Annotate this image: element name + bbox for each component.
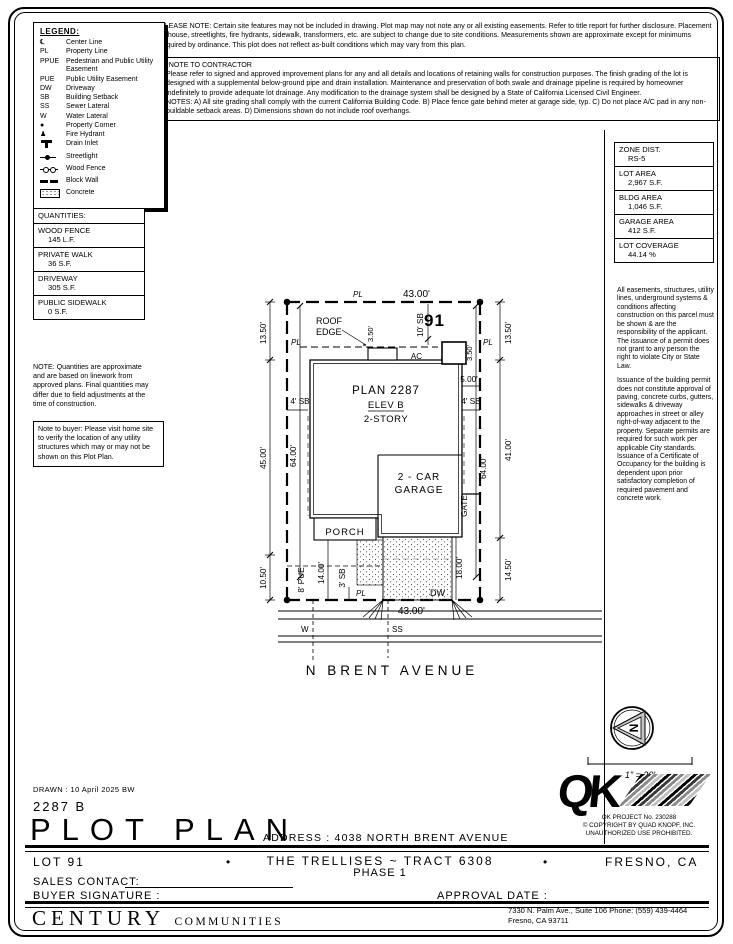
legend-item-setback: SBBuilding Setback: [40, 94, 160, 103]
water-symbol: W: [40, 113, 66, 122]
qk-logo-block: QK QK PROJECT No. 230288 © COPYRIGHT BY …: [556, 774, 708, 846]
house-bay: [368, 348, 397, 360]
dim-rear-setback: 3' SB: [338, 568, 347, 588]
ac-pad: [442, 342, 466, 364]
city-label: FRESNO, CA: [605, 855, 698, 869]
legend-item-driveway: DWDriveway: [40, 85, 160, 94]
disclaimer-easements: All easements, structures, utility lines…: [617, 287, 714, 371]
sewer-symbol: SS: [40, 103, 66, 112]
block-wall-icon: [40, 177, 58, 185]
dim-top-width: 43.00': [403, 289, 430, 300]
roof-edge-leader: [342, 330, 366, 345]
legend-item-wood-fence: Wood Fence: [40, 165, 160, 177]
qk-notice: UNAUTHORIZED USE PROHIBITED.: [570, 830, 708, 838]
site-plan-drawing: PL 43.00' PL PL PL 43.00' 13.50' 45.00' …: [170, 278, 620, 703]
please-note-text: PLEASE NOTE: Certain site features may n…: [160, 22, 712, 50]
roof-edge-label-2: EDGE: [316, 327, 342, 337]
bullet-separator-1: •: [226, 855, 230, 869]
dim-ac-width: 5.00': [460, 375, 478, 384]
quantities-title: QUANTITIES:: [33, 208, 145, 224]
fire-hydrant-icon: ♟: [40, 131, 66, 140]
roof-edge-label-1: ROOF: [316, 316, 343, 326]
sheet-title: PLOT PLAN: [30, 812, 299, 848]
streetlight-icon: [40, 153, 56, 161]
address-value: 4038 NORTH BRENT AVENUE: [335, 832, 509, 844]
sewer-lateral-label: SS: [392, 625, 403, 634]
company-logo: CENTURY COMMUNITIES: [32, 906, 283, 931]
legend-box: LEGEND: ℄Center Line PLProperty Line PPU…: [33, 22, 165, 209]
street-name: N BRENT AVENUE: [306, 663, 479, 678]
legend-title: LEGEND:: [40, 27, 160, 37]
drawn-by: DRAWN : 10 April 2025 BW: [33, 785, 135, 794]
dim-driveway-depth: 18.00': [455, 557, 464, 579]
plot-plan-sheet: PLEASE NOTE: Certain site features may n…: [0, 0, 733, 944]
company-address-line1: 7330 N. Palm Ave., Suite 106 Phone: (559…: [508, 906, 687, 916]
lot-number: 91: [424, 311, 445, 330]
dw-label: DW: [430, 588, 445, 598]
zoning-table: ZONE DIST.RS-5 LOT AREA2,967 S.F. BLDG A…: [614, 142, 714, 263]
dim-pue: 8' PUE: [297, 567, 306, 593]
legend-item-fire-hydrant: ♟Fire Hydrant: [40, 131, 160, 140]
dim-left-mid: 45.00': [259, 447, 268, 469]
legend-item-pue: PUEPublic Utility Easement: [40, 76, 160, 85]
legend-item-drain-inlet: Drain Inlet: [40, 140, 160, 152]
qk-logo-text: QK: [555, 764, 620, 818]
address-label: ADDRESS :: [263, 832, 330, 844]
quantities-row-wood-fence: WOOD FENCE145 L.F.: [33, 224, 145, 248]
private-walk-concrete: [357, 540, 383, 585]
zone-district-row: ZONE DIST.RS-5: [614, 142, 714, 167]
property-corner-icon: ●: [40, 122, 66, 131]
lot-label: LOT 91: [33, 855, 85, 869]
company-address: 7330 N. Palm Ave., Suite 106 Phone: (559…: [508, 906, 687, 926]
garage-label-1: 2 - CAR: [398, 472, 441, 483]
plan-name: PLAN 2287: [352, 385, 420, 397]
pl-label-right: PL: [483, 338, 493, 347]
wood-fence-icon: [40, 165, 58, 173]
pl-label-bottom: PL: [356, 589, 366, 598]
ppue-symbol: PPUE: [40, 58, 66, 67]
legend-item-sewer: SSSewer Lateral: [40, 103, 160, 112]
dim-right-top: 13.50': [504, 322, 513, 344]
legend-item-property-corner: ●Property Corner: [40, 122, 160, 131]
north-label: N: [627, 724, 641, 733]
quantities-table: QUANTITIES: WOOD FENCE145 L.F. PRIVATE W…: [33, 208, 145, 320]
legend-item-water: WWater Lateral: [40, 113, 160, 122]
dim-ac-offset: 3.50': [465, 344, 474, 361]
dim-walk-depth: 14.00': [317, 562, 326, 584]
city-disclaimers: All easements, structures, utility lines…: [617, 287, 714, 510]
contractor-note-list: NOTES: A) All site grading shall comply …: [166, 98, 714, 116]
qk-project-number: QK PROJECT No. 230288: [570, 814, 708, 822]
bullet-separator-2: •: [543, 855, 547, 869]
disclaimer-permits: Issuance of the building permit does not…: [617, 377, 714, 503]
dim-left-bottom: 10.50': [259, 567, 268, 589]
dim-side-setback-right: 4' SB: [461, 397, 481, 406]
quantities-row-public-sidewalk: PUBLIC SIDEWALK0 S.F.: [33, 296, 145, 320]
porch-label: PORCH: [325, 527, 364, 538]
water-lateral-label: W: [301, 625, 309, 634]
sales-contact-field[interactable]: [125, 875, 293, 888]
quantities-row-private-walk: PRIVATE WALK36 S.F.: [33, 248, 145, 272]
dim-right-inner: 64.00': [479, 457, 488, 479]
drain-inlet-icon: [40, 140, 53, 148]
company-name-secondary: COMMUNITIES: [174, 916, 283, 928]
dim-right-mid: 41.00': [504, 439, 513, 461]
gate-label: GATE: [460, 495, 469, 517]
dim-roof-offset: 3.50': [366, 325, 375, 342]
plan-elevation: ELEV B: [368, 400, 404, 411]
pl-label-left: PL: [291, 338, 301, 347]
property-line-symbol: PL: [40, 48, 66, 57]
sales-contact-label: SALES CONTACT:: [33, 876, 140, 888]
contractor-note-title: *NOTE TO CONTRACTOR: [166, 61, 714, 70]
center-line-symbol: ℄: [40, 39, 66, 48]
legend-item-property-line: PLProperty Line: [40, 48, 160, 57]
driveway-symbol: DW: [40, 85, 66, 94]
legend-item-ppue: PPUEPedestrian and Public Utility Easeme…: [40, 58, 160, 76]
dim-bottom-width: 43.00': [398, 606, 425, 617]
plan-stories: 2-STORY: [364, 414, 408, 425]
concrete-swatch-icon: [40, 189, 60, 198]
contractor-note-body: Please refer to signed and approved impr…: [166, 70, 714, 98]
quantities-row-driveway: DRIVEWAY305 S.F.: [33, 272, 145, 296]
dim-left-top: 13.50': [259, 322, 268, 344]
garage-area-row: GARAGE AREA412 S.F.: [614, 215, 714, 239]
legend-item-block-wall: Block Wall: [40, 177, 160, 189]
ac-label: AC: [411, 352, 422, 361]
lot-area-row: LOT AREA2,967 S.F.: [614, 167, 714, 191]
garage-label-2: GARAGE: [395, 485, 444, 496]
legend-item-concrete: Concrete: [40, 189, 160, 202]
company-name-primary: CENTURY: [32, 906, 164, 930]
buyer-note-box: Note to buyer: Please visit home site to…: [33, 421, 164, 467]
title-rule-top: [25, 845, 709, 852]
setback-symbol: SB: [40, 94, 66, 103]
pue-symbol: PUE: [40, 76, 66, 85]
dim-right-bottom: 14.50': [504, 559, 513, 581]
quantities-note: NOTE: Quantities are approximate and are…: [33, 363, 153, 409]
bldg-area-row: BLDG AREA1,046 S.F.: [614, 191, 714, 215]
company-address-line2: Fresno, CA 93711: [508, 916, 687, 926]
qk-logo-stripes: [619, 774, 711, 806]
dim-side-setback-left: 4' SB: [290, 397, 310, 406]
pl-label-top: PL: [353, 290, 363, 299]
lot-coverage-row: LOT COVERAGE44.14 %: [614, 239, 714, 263]
street-lines: [278, 611, 602, 642]
qk-copyright: © COPYRIGHT BY QUAD KNOPF, INC.: [570, 822, 708, 830]
community-name: THE TRELLISES ~ TRACT 6308: [255, 854, 505, 868]
legend-item-streetlight: Streetlight: [40, 153, 160, 165]
dim-left-inner: 64.00': [289, 445, 298, 467]
contractor-note-box: *NOTE TO CONTRACTOR Please refer to sign…: [160, 57, 720, 121]
legend-item-center-line: ℄Center Line: [40, 39, 160, 48]
